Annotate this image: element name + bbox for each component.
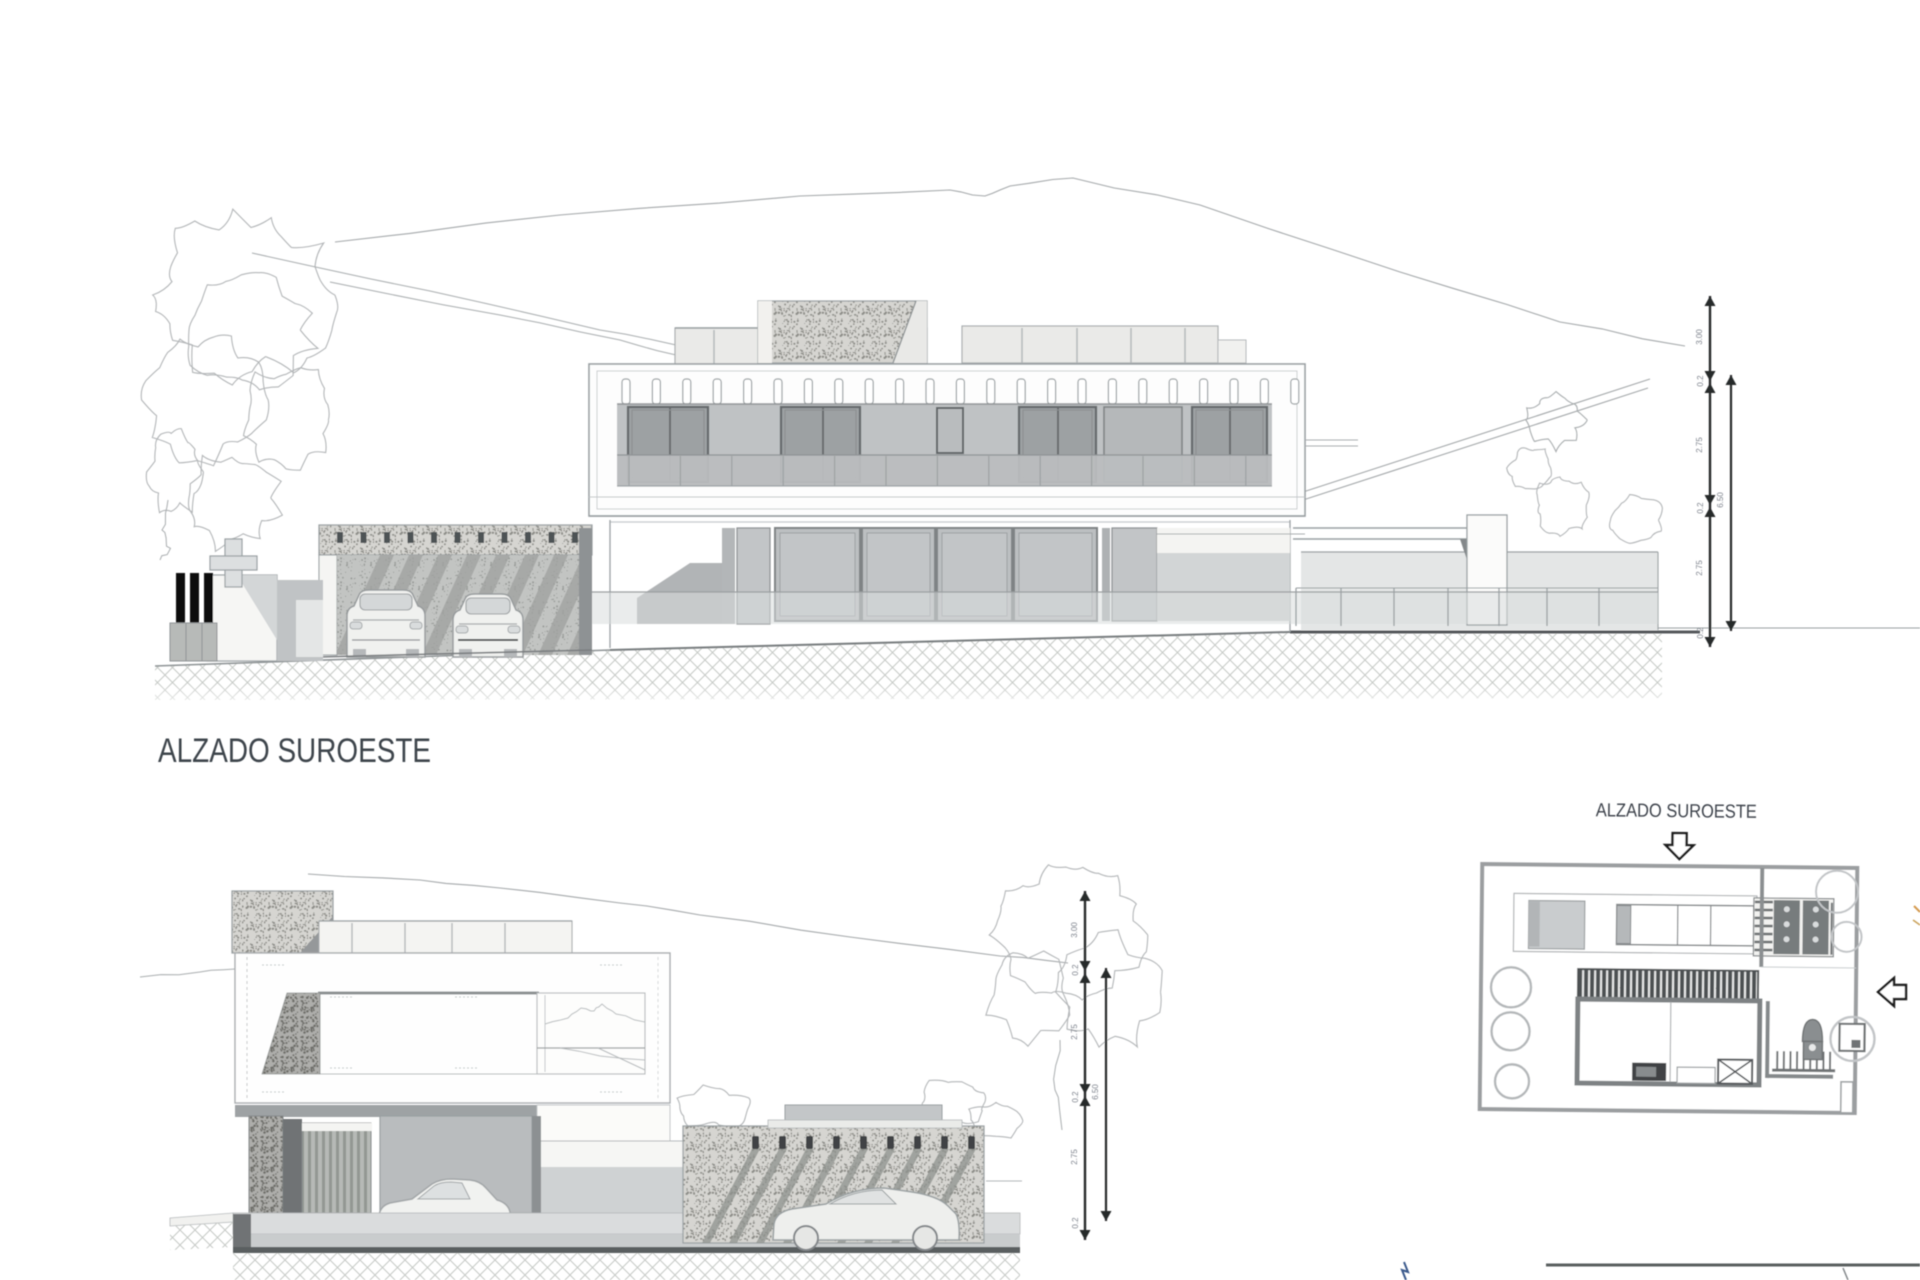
svg-text:0.2: 0.2 [1696, 502, 1705, 514]
svg-text:0.2: 0.2 [1071, 1091, 1080, 1103]
svg-text:3.00: 3.00 [1070, 922, 1079, 938]
svg-text:0.2: 0.2 [1696, 627, 1705, 639]
svg-text:3.00: 3.00 [1695, 329, 1704, 345]
svg-text:ALZADO SUROESTE: ALZADO SUROESTE [1596, 800, 1757, 823]
svg-text:6.50: 6.50 [1716, 492, 1725, 508]
svg-text:0.2: 0.2 [1696, 375, 1705, 387]
svg-text:2.75: 2.75 [1695, 560, 1704, 576]
svg-text:2.75: 2.75 [1070, 1149, 1079, 1165]
svg-text:0.2: 0.2 [1071, 1217, 1080, 1229]
svg-text:2.75: 2.75 [1695, 437, 1704, 453]
svg-text:6.50: 6.50 [1091, 1084, 1100, 1100]
svg-text:ALZADO SUROESTE: ALZADO SUROESTE [158, 732, 431, 770]
svg-text:0.2: 0.2 [1071, 964, 1080, 976]
svg-text:2.75: 2.75 [1070, 1024, 1079, 1040]
